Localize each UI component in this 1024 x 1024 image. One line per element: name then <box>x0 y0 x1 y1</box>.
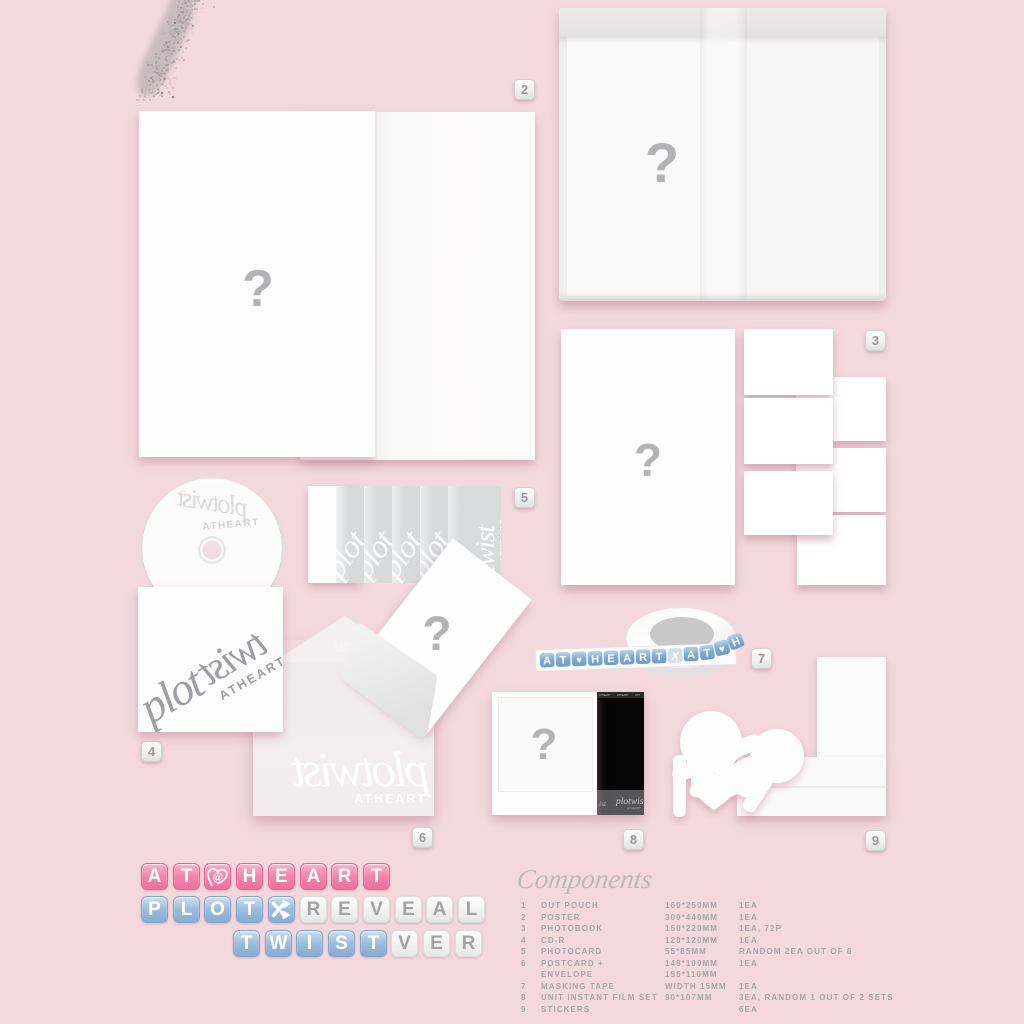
svg-text:A: A <box>543 655 551 667</box>
svg-text:@: @ <box>213 869 223 883</box>
svg-text:E: E <box>607 653 615 665</box>
svg-text:ist: ist <box>599 799 607 808</box>
svg-text:X: X <box>670 651 679 663</box>
svg-text:ATH: ATH <box>635 694 640 697</box>
svg-text:T: T <box>656 651 663 663</box>
svg-text:A: A <box>687 649 695 661</box>
svg-text:ATHEART: ATHEART <box>627 806 641 810</box>
svg-text:A: A <box>623 652 631 664</box>
svg-text:♥: ♥ <box>576 655 582 666</box>
svg-text:ATHEART: ATHEART <box>617 694 629 697</box>
svg-text:ATHEART: ATHEART <box>354 792 427 806</box>
svg-text:ATHEART: ATHEART <box>599 694 611 697</box>
svg-text:T: T <box>560 655 567 667</box>
svg-text:H: H <box>591 653 599 665</box>
svg-text:R: R <box>639 652 647 664</box>
svg-text:ATHEART: ATHEART <box>498 518 501 562</box>
